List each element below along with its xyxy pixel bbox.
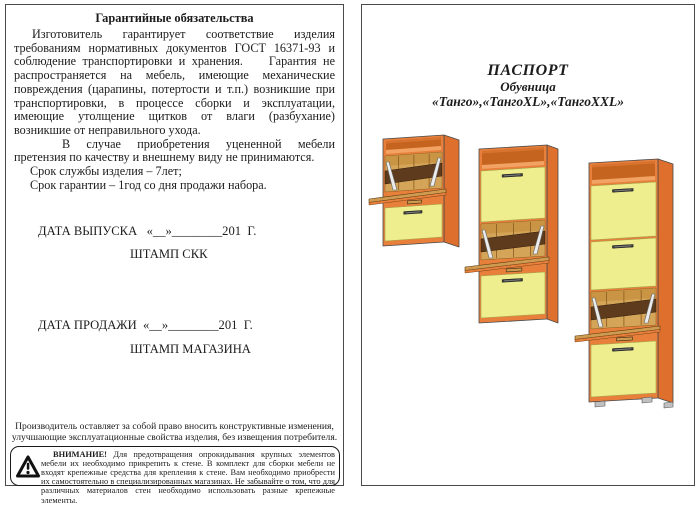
- passport-page: ПАСПОРТ Обувница «Танго»,«ТангоXL»,«Танг…: [361, 4, 695, 486]
- date-of-issue-line: ДАТА ВЫПУСКА «__»________201 Г.: [38, 224, 256, 239]
- warning-triangle-icon: [16, 455, 40, 478]
- shop-stamp-line: ШТАМП МАГАЗИНА: [130, 342, 251, 357]
- service-life-line: Срок службы изделия – 7лет;: [14, 165, 335, 179]
- warning-label: ВНИМАНИЕ!: [53, 450, 107, 459]
- warranty-page: Гарантийные обязательства Изготовитель г…: [5, 4, 344, 486]
- warning-box: ВНИМАНИЕ! Для предотвращения опрокидыван…: [10, 446, 340, 486]
- cabinet-Танго: [369, 135, 459, 247]
- cabinet-drawings: [362, 5, 696, 487]
- warranty-body: Изготовитель гарантирует соответствие из…: [6, 26, 343, 192]
- discount-paragraph: В случае приобретения уцененной мебели п…: [14, 138, 335, 165]
- cabinet-ТангоXXL: [575, 159, 673, 408]
- warning-body-text: Для предотвращения опрокидывания крупных…: [41, 450, 335, 505]
- skk-stamp-line: ШТАМП СКК: [130, 247, 208, 262]
- cabinet-ТангоXL: [465, 145, 558, 323]
- warranty-title: Гарантийные обязательства: [6, 11, 343, 26]
- warning-text: ВНИМАНИЕ! Для предотвращения опрокидыван…: [41, 450, 335, 505]
- warranty-paragraph: Изготовитель гарантирует соответствие из…: [14, 28, 335, 138]
- date-of-sale-line: ДАТА ПРОДАЖИ «__»________201 Г.: [38, 318, 253, 333]
- warranty-term-line: Срок гарантии – 1год со дня продажи набо…: [14, 179, 335, 193]
- manufacturer-note: Производитель оставляет за собой право в…: [6, 422, 343, 444]
